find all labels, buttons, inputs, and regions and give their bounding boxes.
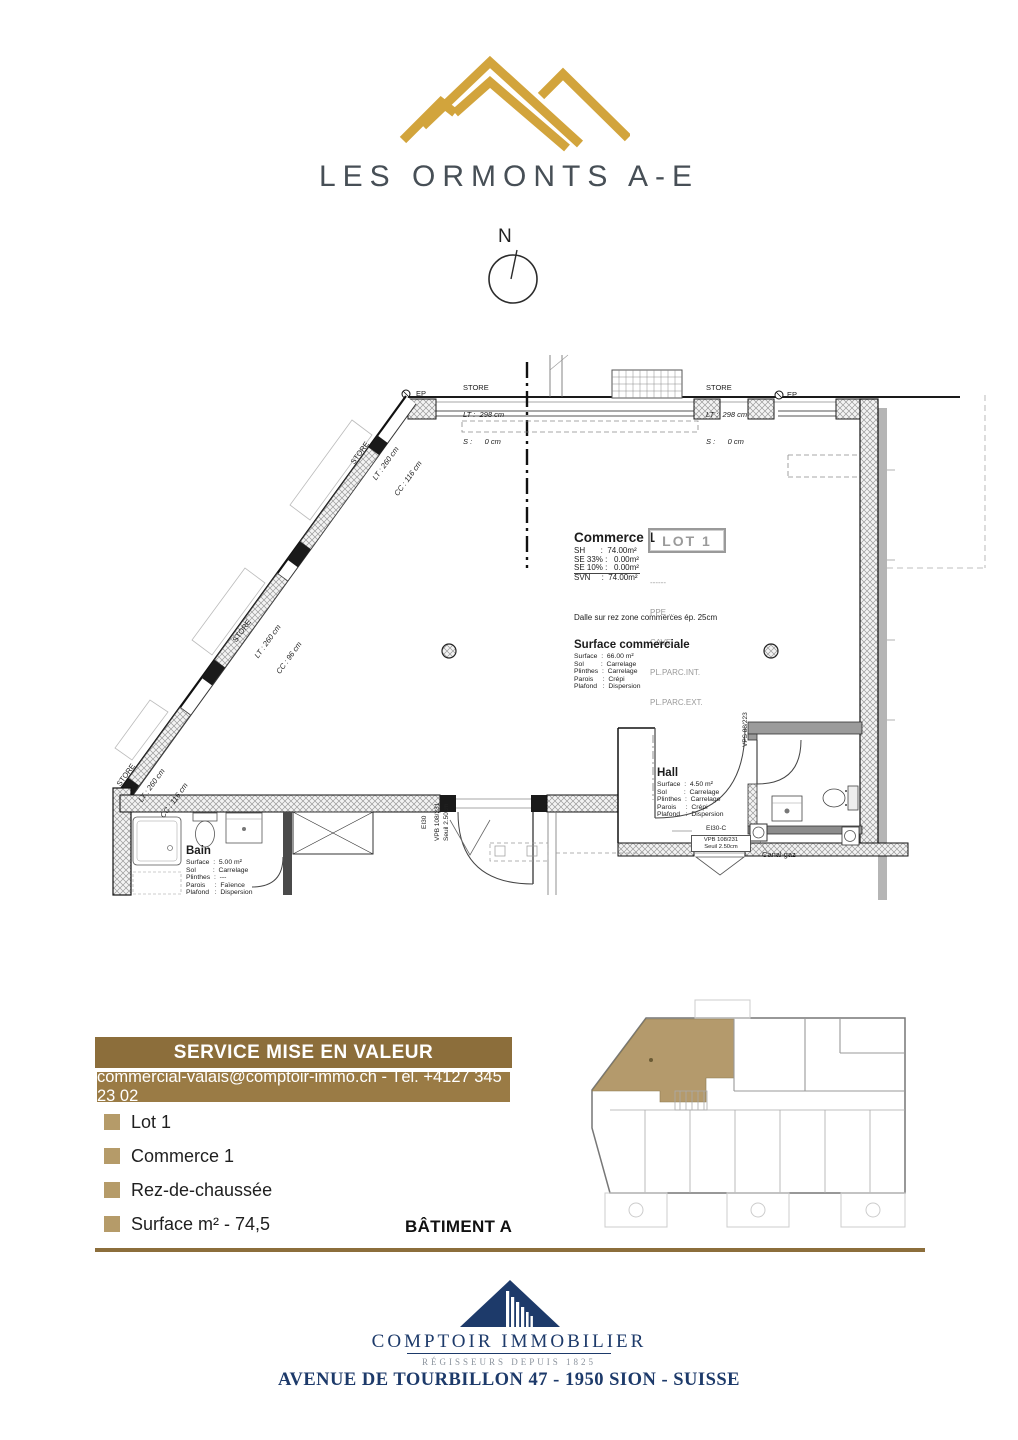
bullet-square-icon bbox=[104, 1148, 120, 1164]
contact-banner: commercial-valais@comptoir-immo.ch - Tél… bbox=[97, 1072, 510, 1102]
right-wall bbox=[860, 399, 895, 900]
hall-door-spec-box: VPB 108/231 Seuil 2.50cm bbox=[691, 835, 751, 852]
lot-badge: LOT 1 bbox=[648, 528, 726, 553]
store-s: S : 0 cm bbox=[463, 437, 504, 446]
flyer-page: LES ORMONTS A-E N bbox=[0, 0, 1018, 1440]
bain-block: Bain Surface : 5.00 m² Sol : Carrelage P… bbox=[186, 845, 253, 897]
legend-label: Commerce 1 bbox=[131, 1146, 234, 1167]
divider-rule bbox=[95, 1248, 925, 1252]
legend-item: Commerce 1 bbox=[104, 1146, 234, 1166]
commerce-row: SE 10% : 0.00m² bbox=[574, 564, 640, 573]
bullet-square-icon bbox=[104, 1182, 120, 1198]
bullet-square-icon bbox=[104, 1114, 120, 1130]
commerce-info-block: Commerce 1 SH : 74.00m² SE 33% : 0.00m² … bbox=[574, 530, 655, 582]
legend-item: Lot 1 bbox=[104, 1112, 171, 1132]
commerce-row-total: SVN : 74.00m² bbox=[574, 573, 640, 583]
store-label-top-left: STORE LT : 298 cm S : 0 cm bbox=[463, 365, 504, 464]
store-lt: LT : 260 cm bbox=[136, 765, 167, 804]
store-title: STORE bbox=[706, 383, 747, 392]
site-plan-building bbox=[592, 1000, 905, 1227]
store-cc: CC : 96 cm bbox=[274, 639, 304, 676]
schedule-row: Parois : Faïence bbox=[186, 882, 253, 890]
hall-block: Hall Surface : 4.50 m² Sol : Carrelage P… bbox=[657, 767, 724, 819]
bain-fixtures bbox=[133, 812, 373, 895]
hall-door-sill-label: Seuil 2.50cm bbox=[694, 844, 748, 851]
site-plan-terraces bbox=[605, 1193, 905, 1227]
compass-icon bbox=[482, 246, 546, 306]
schedule-row: Plafond : Dispersion bbox=[657, 811, 724, 819]
schedule-row: Surface : 66.00 m² bbox=[574, 653, 690, 661]
store-title: STORE bbox=[231, 607, 261, 644]
schedule-row: Plinthes : Carrelage bbox=[657, 796, 724, 804]
roof-grille bbox=[550, 355, 682, 398]
schedule-row: Sol : Carrelage bbox=[186, 867, 253, 875]
schedule-row: Sol : Carrelage bbox=[574, 661, 690, 669]
wc-window-label: VPS 88/223 bbox=[742, 712, 749, 747]
project-title: LES ORMONTS A-E bbox=[0, 160, 1018, 194]
store-s: S : 0 cm bbox=[706, 437, 747, 446]
canal-gaz-label: Canal gaz bbox=[762, 850, 796, 859]
store-lt: LT : 298 cm bbox=[463, 410, 504, 419]
store-lt: LT : 260 cm bbox=[252, 623, 282, 660]
slab-note: Dalle sur rez zone commerces ép. 25cm bbox=[574, 613, 717, 622]
service-banner: SERVICE MISE EN VALEUR bbox=[95, 1037, 512, 1068]
legend-item: Surface m² - 74,5 bbox=[104, 1214, 270, 1234]
schedule-row: Plafond : Dispersion bbox=[186, 889, 253, 897]
batiment-label: BÂTIMENT A bbox=[405, 1217, 512, 1237]
main-door-ref-label: VPB 108/231 bbox=[434, 803, 441, 841]
main-door-sill-label: Seuil 2.50cm bbox=[443, 803, 450, 841]
room-title-bain: Bain bbox=[186, 845, 253, 857]
ownership-separator: ------ bbox=[650, 578, 703, 588]
footer-address: AVENUE DE TOURBILLON 47 - 1950 SION - SU… bbox=[0, 1370, 1018, 1391]
comptoir-triangle-icon bbox=[460, 1280, 560, 1328]
bullet-square-icon bbox=[104, 1216, 120, 1232]
legend-item: Rez-de-chaussée bbox=[104, 1180, 272, 1200]
store-cc: CC : 116 cm bbox=[392, 459, 423, 498]
store-cc: CC : 116 cm bbox=[158, 781, 189, 820]
legend-label: Lot 1 bbox=[131, 1112, 171, 1133]
store-title: STORE bbox=[463, 383, 504, 392]
footer-tagline: RÉGISSEURS DEPUIS 1825 bbox=[0, 1357, 1018, 1367]
room-title-hall: Hall bbox=[657, 767, 724, 779]
store-lt: LT : 260 cm bbox=[370, 443, 401, 482]
schedule-row: Sol : Carrelage bbox=[657, 789, 724, 797]
mountains-logo-icon bbox=[395, 52, 630, 152]
main-door-fire-label: EI30 bbox=[421, 816, 428, 829]
schedule-row: Plinthes : --- bbox=[186, 874, 253, 882]
footer-underline bbox=[407, 1353, 611, 1354]
hall-door-fire-label: EI30-C bbox=[706, 825, 726, 832]
schedule-row: Plafond : Dispersion bbox=[574, 683, 690, 691]
surface-commerciale-block: Surface commerciale Surface : 66.00 m² S… bbox=[574, 639, 690, 691]
room-title-surface-commerciale: Surface commerciale bbox=[574, 639, 690, 651]
store-title: STORE bbox=[349, 427, 380, 466]
footer-company-name: COMPTOIR IMMOBILIER bbox=[0, 1331, 1018, 1353]
hall-door-ref-label: VPB 108/231 bbox=[694, 837, 748, 844]
schedule-row: Plinthes : Carrelage bbox=[574, 668, 690, 676]
store-title: STORE bbox=[115, 749, 146, 788]
store-label-top-right: STORE LT : 298 cm S : 0 cm bbox=[706, 365, 747, 464]
wc-room-walls bbox=[748, 722, 862, 834]
compass-north-label: N bbox=[498, 226, 512, 248]
legend-label: Surface m² - 74,5 bbox=[131, 1214, 270, 1235]
store-lt: LT : 298 cm bbox=[706, 410, 747, 419]
mountain-strokes bbox=[403, 62, 628, 148]
room-title-commerce: Commerce 1 bbox=[574, 530, 655, 545]
schedule-row: Surface : 5.00 m² bbox=[186, 859, 253, 867]
ep-label-left: EP bbox=[416, 389, 426, 398]
schedule-row: Parois : Crépi bbox=[574, 676, 690, 684]
schedule-row: Surface : 4.50 m² bbox=[657, 781, 724, 789]
site-plan-thumbnail bbox=[575, 988, 925, 1240]
ownership-line: PL.PARC.EXT. bbox=[650, 698, 703, 708]
ep-label-right: EP bbox=[787, 390, 797, 399]
legend-label: Rez-de-chaussée bbox=[131, 1180, 272, 1201]
schedule-row: Parois : Crépi bbox=[657, 804, 724, 812]
